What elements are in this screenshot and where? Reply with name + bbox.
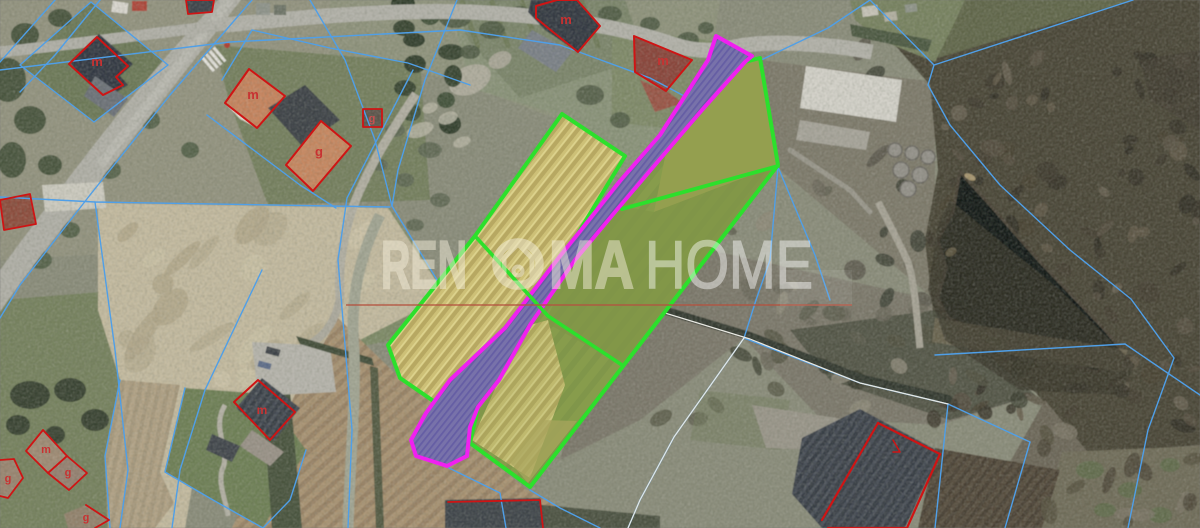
svg-text:m: m [560, 12, 572, 27]
svg-text:g: g [5, 473, 12, 485]
svg-text:m: m [41, 444, 51, 456]
svg-text:m: m [247, 87, 259, 102]
svg-text:m: m [91, 54, 103, 69]
svg-text:REN: REN [381, 227, 467, 303]
svg-text:MA: MA [549, 227, 634, 303]
svg-text:m: m [257, 403, 268, 417]
svg-text:g: g [369, 113, 376, 125]
svg-text:g: g [315, 144, 323, 159]
svg-text:g: g [65, 467, 72, 479]
svg-text:g: g [83, 512, 90, 524]
svg-text:m: m [657, 53, 669, 68]
